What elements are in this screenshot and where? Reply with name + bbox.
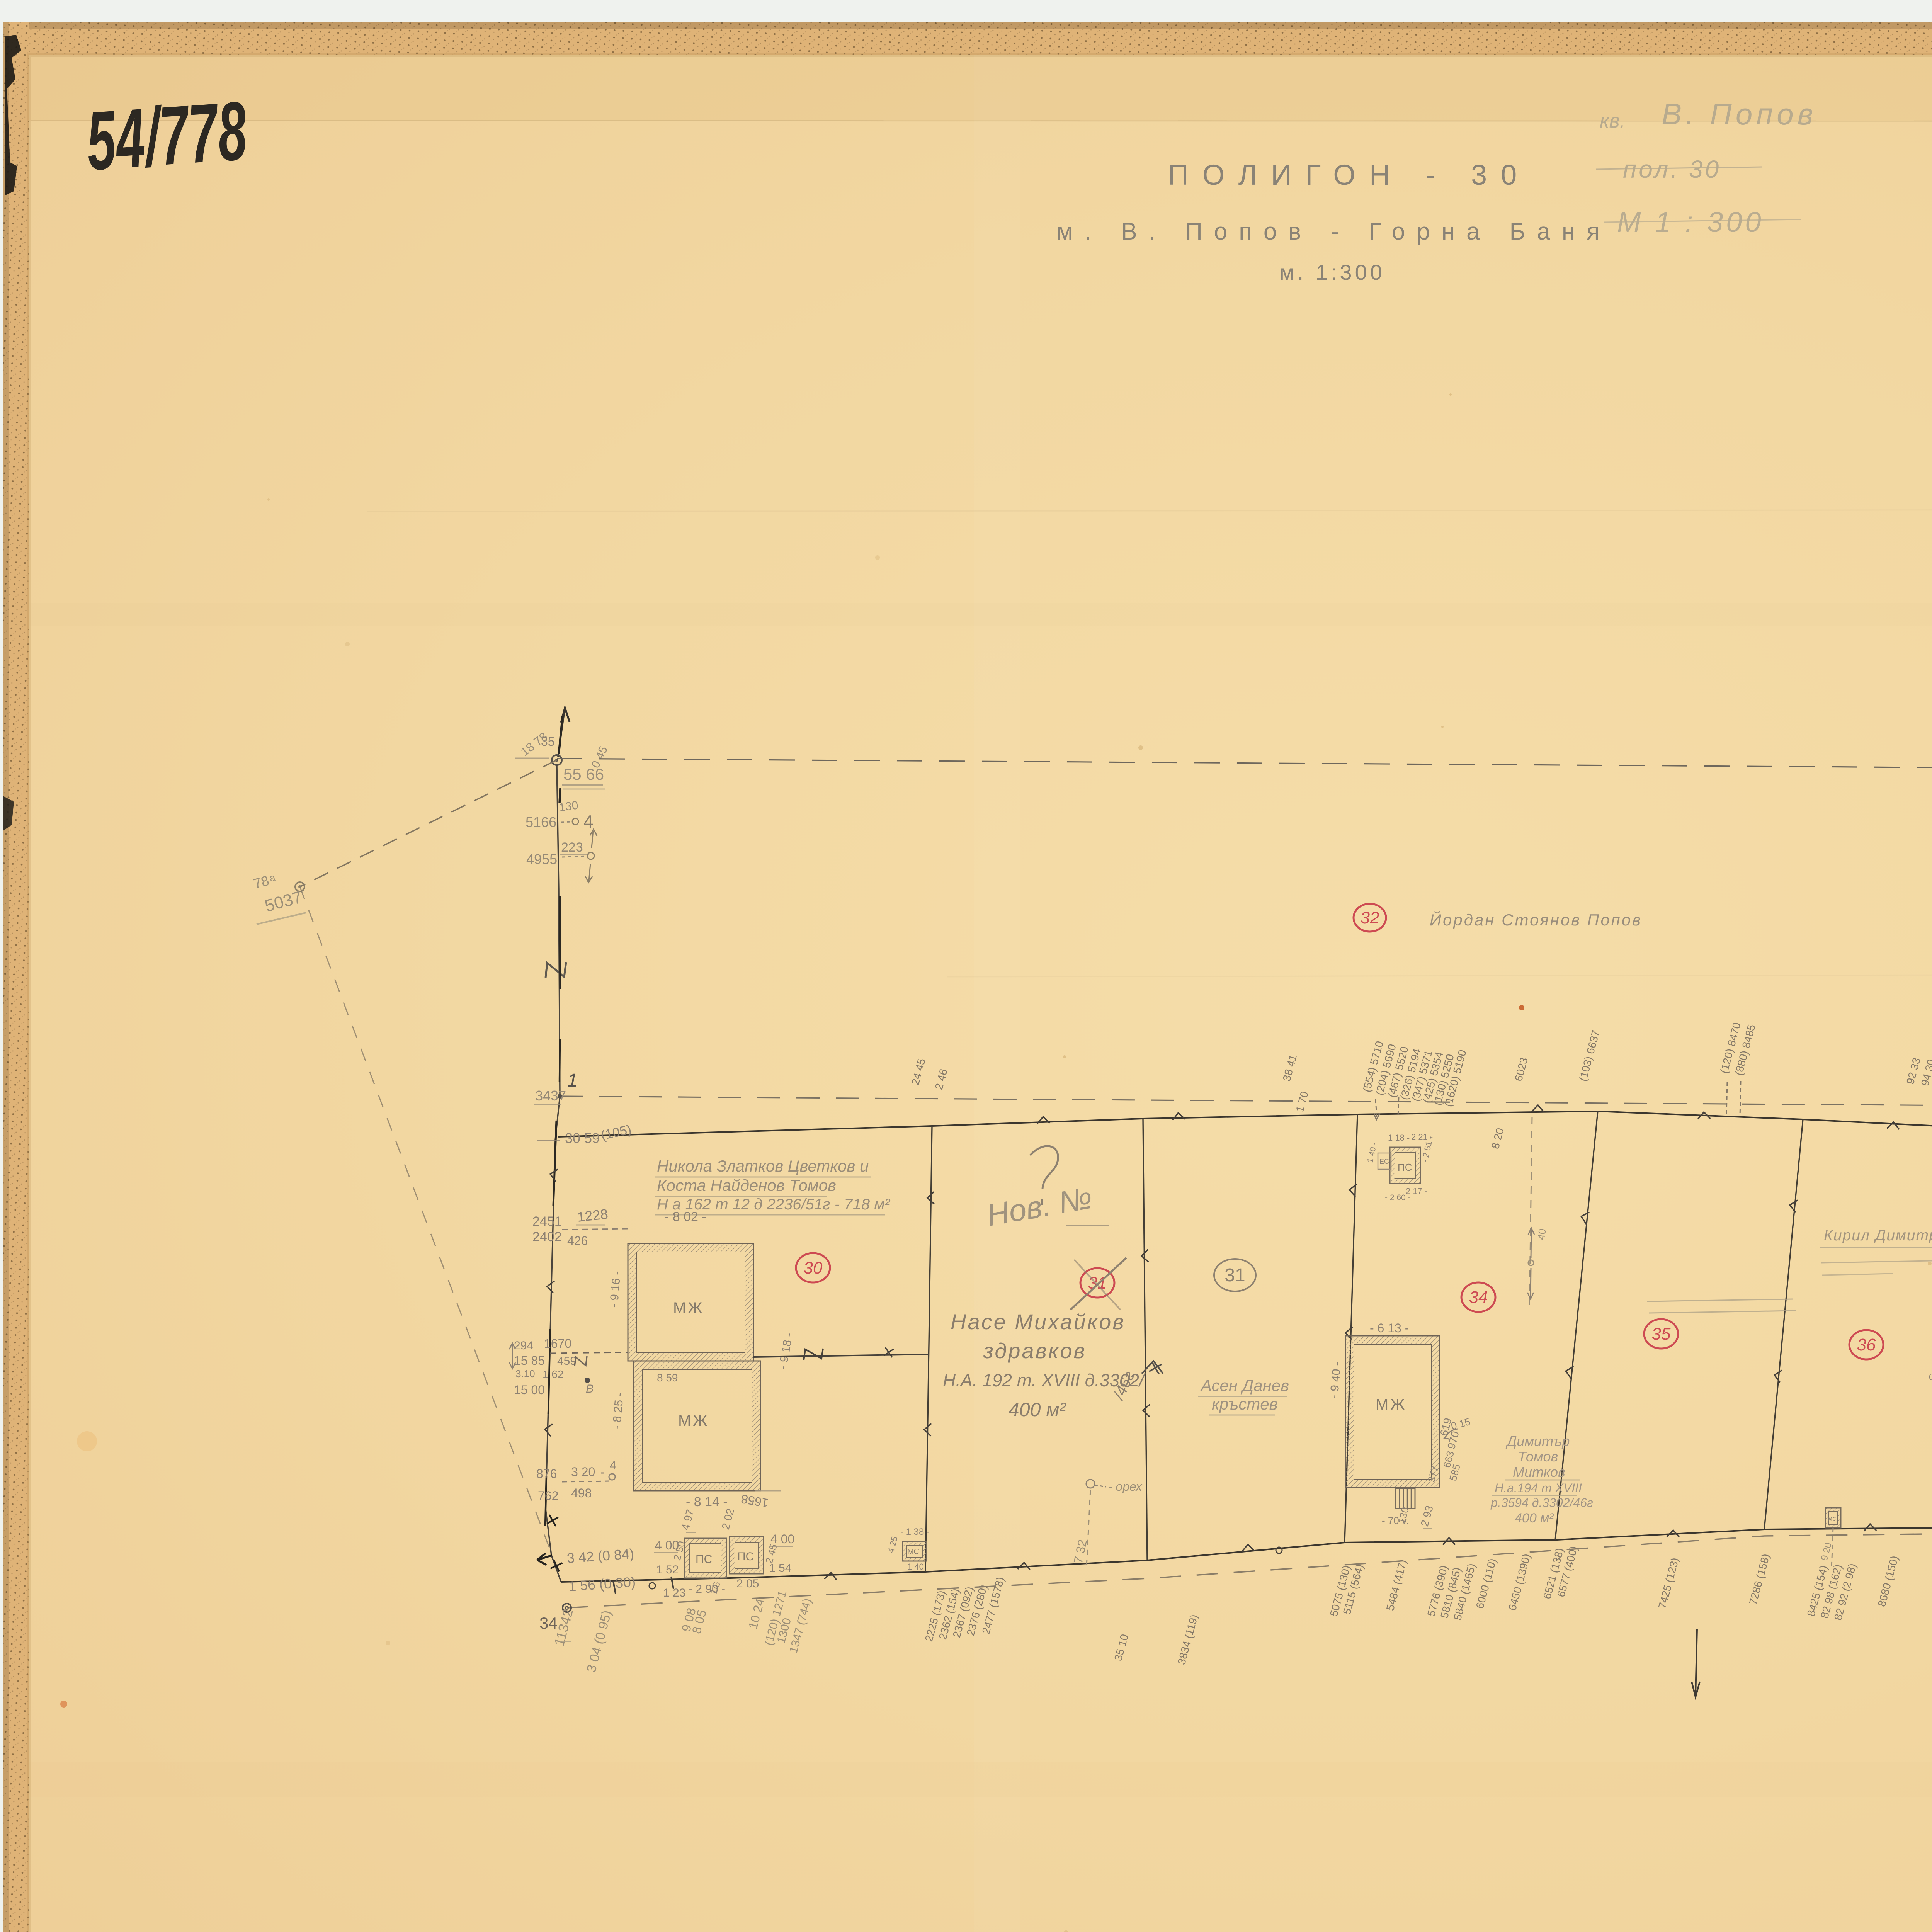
svg-text:МЖ: МЖ [1376,1396,1406,1413]
svg-text:МЖ: МЖ [673,1299,704,1316]
svg-text:В: В [586,1383,594,1395]
svg-text:4: 4 [610,1459,616,1472]
svg-text:876: 876 [536,1467,557,1481]
svg-text:кръстев: кръстев [1212,1395,1278,1413]
svg-text:30 59: 30 59 [565,1130,600,1146]
svg-text:здравков: здравков [983,1338,1087,1363]
svg-text:54/778: 54/778 [83,84,250,188]
svg-text:35: 35 [1652,1325,1671,1344]
svg-text:459: 459 [557,1355,577,1367]
svg-text:1228: 1228 [577,1206,609,1225]
svg-text:Насе Михайков: Насе Михайков [951,1310,1126,1334]
svg-text:35: 35 [541,735,555,748]
svg-text:1 54: 1 54 [769,1562,791,1575]
svg-text:498: 498 [571,1486,592,1500]
svg-text:Томов: Томов [1518,1449,1558,1464]
svg-text:2451: 2451 [532,1214,562,1229]
svg-text:- 2 60 -: - 2 60 - [1385,1193,1411,1202]
svg-text:Йордан Стоянов Попов: Йордан Стоянов Попов [1430,910,1642,929]
svg-text:1 40: 1 40 [907,1562,924,1571]
svg-text:4: 4 [583,811,594,832]
svg-text:32: 32 [1361,908,1379,927]
svg-text:0 26: 0 26 [1929,1372,1932,1383]
svg-text:15 00: 15 00 [514,1383,545,1397]
svg-text:3 20: 3 20 [571,1465,595,1479]
svg-text:426: 426 [567,1234,588,1248]
svg-text:4 00: 4 00 [770,1532,794,1546]
svg-text:м. 1:300: м. 1:300 [1279,260,1385,284]
svg-text:р.3594 д.3302/46г: р.3594 д.3302/46г [1490,1496,1593,1510]
svg-text:1670: 1670 [544,1337,571,1350]
svg-text:- орех: - орех [1108,1480,1143,1493]
svg-text:130: 130 [558,799,579,814]
svg-text:31: 31 [1225,1265,1245,1286]
svg-text:МЖ: МЖ [678,1412,709,1429]
svg-text:Никола Златков Цветков и: Никола Златков Цветков и [657,1157,869,1175]
svg-text:4955: 4955 [526,851,557,867]
svg-text:ПС: ПС [737,1550,754,1563]
svg-text:Кирил Димитров: Кирил Димитров [1824,1227,1932,1244]
svg-text:8 59: 8 59 [657,1372,678,1384]
svg-text:36: 36 [1857,1335,1876,1354]
svg-text:- 6 13 -: - 6 13 - [1370,1321,1409,1335]
svg-text:ПС: ПС [696,1553,712,1566]
svg-text:- 1 38 -: - 1 38 - [900,1527,930,1537]
svg-text:ПС: ПС [1398,1162,1412,1173]
svg-text:2 05: 2 05 [736,1577,759,1590]
svg-text:1 18 -: 1 18 - [1388,1133,1410,1143]
svg-text:Коста Найденов Томов: Коста Найденов Томов [657,1176,836,1194]
svg-text:3437: 3437 [535,1088,566,1104]
svg-text:2402: 2402 [532,1230,562,1244]
svg-text:м. В. Попов - Горна Баня: м. В. Попов - Горна Баня [1056,218,1611,245]
svg-text:1 52: 1 52 [656,1563,679,1576]
svg-text:30: 30 [804,1259,823,1277]
svg-text:МС: МС [907,1548,919,1556]
svg-text:223: 223 [561,840,583,855]
svg-text:5166: 5166 [526,814,556,830]
svg-text:пол. 30: пол. 30 [1623,155,1721,183]
svg-text:- 8 14 -: - 8 14 - [686,1495,728,1509]
svg-text:1 23: 1 23 [663,1587,685,1599]
svg-text:762: 762 [538,1489,558,1503]
svg-text:Н.а.194 т ХVIII: Н.а.194 т ХVIII [1495,1481,1582,1495]
svg-text:кв.: кв. [1600,110,1625,132]
svg-text:3.10: 3.10 [515,1368,535,1379]
svg-text:Асен Данев: Асен Данев [1200,1376,1289,1395]
svg-text:- 8 02 -: - 8 02 - [665,1209,706,1224]
svg-text:Димитър: Димитър [1505,1433,1570,1449]
svg-text:ПОЛИГОН - 30: ПОЛИГОН - 30 [1168,159,1531,191]
svg-text:- 70 v.: - 70 v. [1382,1515,1409,1526]
svg-text:15 85: 15 85 [514,1354,545,1367]
svg-text:1 62: 1 62 [543,1368,564,1380]
svg-text:В. Попов: В. Попов [1662,97,1817,131]
svg-text:мс: мс [1828,1515,1836,1522]
svg-text:400 м²: 400 м² [1009,1399,1067,1420]
svg-text:294: 294 [514,1339,533,1352]
svg-text:400 м²: 400 м² [1515,1511,1554,1526]
svg-text:1: 1 [567,1070,578,1091]
svg-text:34: 34 [1469,1288,1488,1307]
svg-text:Митков: Митков [1513,1464,1565,1480]
svg-text:40: 40 [1535,1228,1548,1241]
svg-text:ЕС: ЕС [1379,1158,1389,1165]
